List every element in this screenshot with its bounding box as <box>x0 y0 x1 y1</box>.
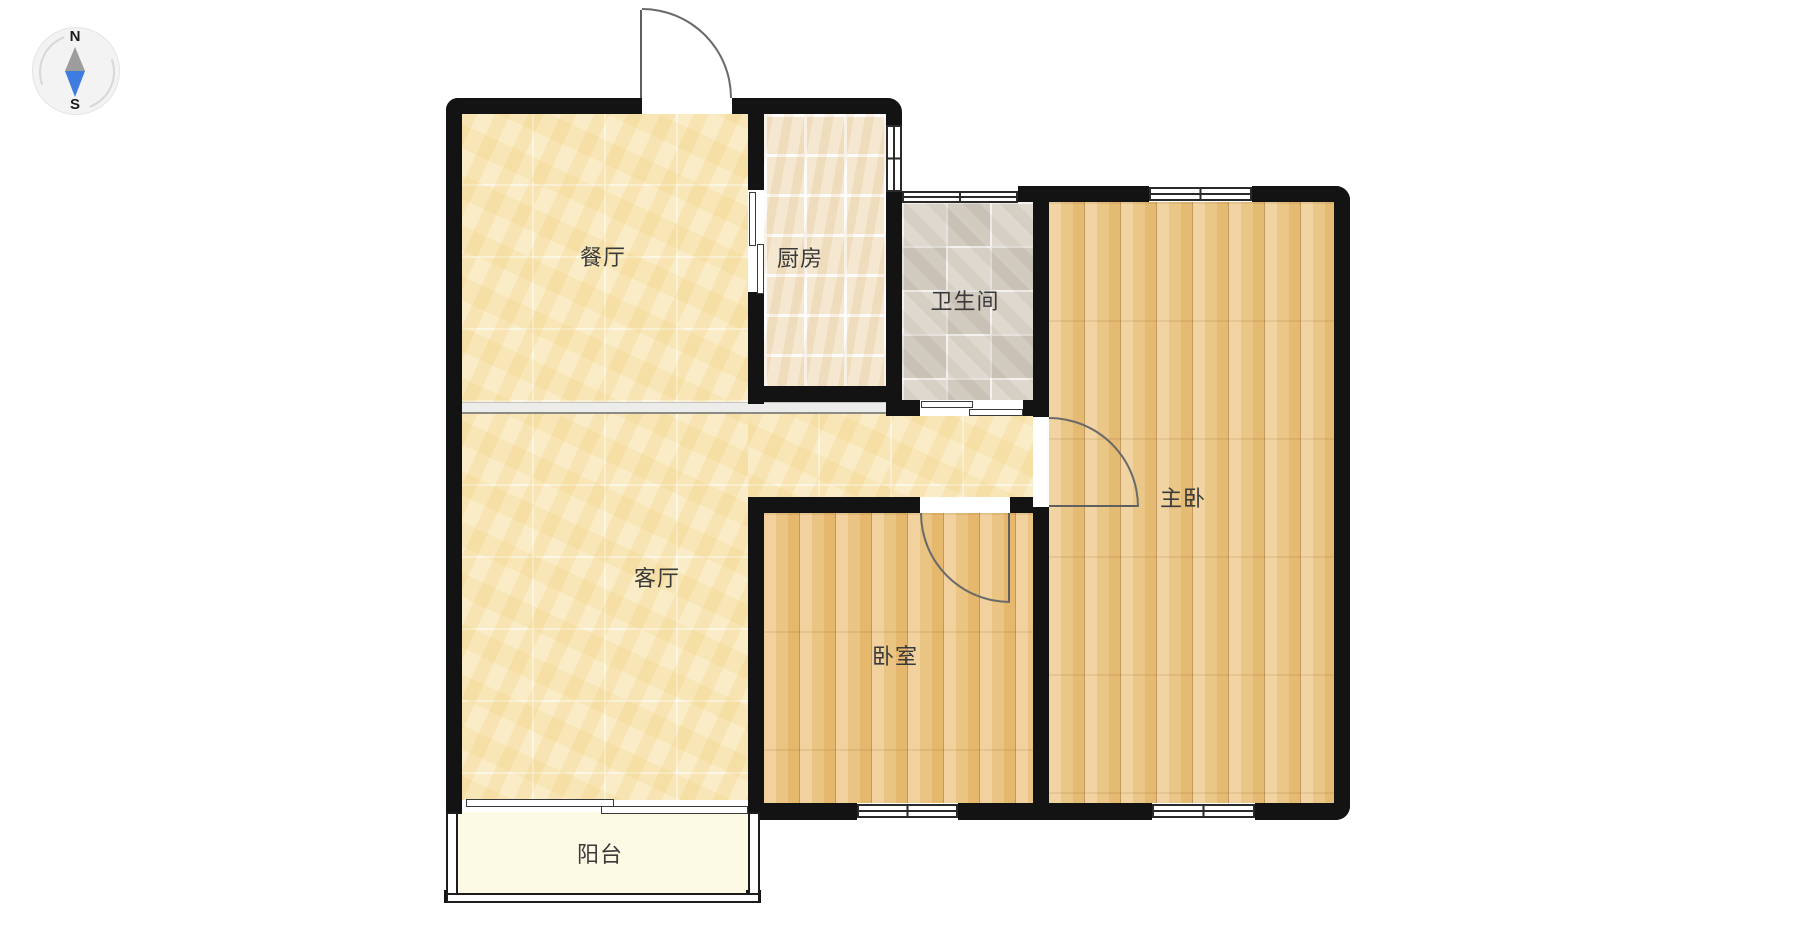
bathroom-sliding-door-panel <box>921 401 973 408</box>
entry-door-opening <box>642 98 732 114</box>
room-label-dining: 餐厅 <box>580 240 626 272</box>
compass-north-label: N <box>70 28 81 45</box>
compass-south-label: S <box>70 96 80 113</box>
room-living-floor <box>462 414 748 800</box>
entry-door-arc <box>642 8 732 98</box>
hallway-floor <box>748 414 1033 497</box>
wall <box>1049 803 1152 820</box>
balcony-sliding-door-panel <box>466 799 614 807</box>
wall <box>1010 497 1033 513</box>
compass-needle-north-icon <box>65 47 85 71</box>
wall <box>886 186 902 402</box>
wall <box>764 386 886 402</box>
bathroom-sliding-door-panel <box>969 409 1023 416</box>
room-label-master-bedroom: 主卧 <box>1160 481 1206 513</box>
compass-needle-south-icon <box>65 71 85 97</box>
room-label-balcony: 阳台 <box>577 837 623 869</box>
wall <box>748 803 857 820</box>
wall <box>446 98 642 114</box>
compass: N S <box>27 22 123 118</box>
room-label-kitchen: 厨房 <box>777 241 823 273</box>
wall <box>886 400 920 416</box>
wall <box>1334 186 1350 820</box>
wall <box>748 114 764 192</box>
room-label-bathroom: 卫生间 <box>930 284 999 316</box>
room-label-bedroom: 卧室 <box>872 639 918 671</box>
bedroom-door-opening <box>920 497 1010 513</box>
kitchen-window <box>886 125 902 192</box>
wall <box>732 98 902 114</box>
kitchen-sliding-door-panel <box>749 192 756 246</box>
balcony-railing-bottom <box>446 893 760 903</box>
balcony-sliding-door-panel <box>601 806 748 814</box>
wall <box>1023 400 1049 416</box>
floor-plan-canvas: 餐厅 厨房 卫生间 主卧 客厅 卧室 阳台 N S <box>0 0 1793 944</box>
bathroom-window <box>902 191 1018 203</box>
balcony-railing-right <box>748 812 760 903</box>
wall <box>958 803 1049 820</box>
master-south-window <box>1152 804 1255 818</box>
wall <box>1033 507 1049 820</box>
wall <box>748 290 764 404</box>
balcony-railing-left <box>446 812 458 903</box>
wall <box>1033 186 1049 417</box>
bedroom-south-window <box>857 804 958 818</box>
wall <box>748 513 764 820</box>
wall <box>748 497 920 513</box>
wall <box>1255 803 1350 820</box>
master-door-opening <box>1033 417 1049 507</box>
room-label-living: 客厅 <box>634 561 680 593</box>
kitchen-sliding-door-panel <box>757 244 764 294</box>
wall <box>446 98 462 814</box>
master-north-window <box>1149 187 1252 201</box>
ceiling-beam-divider <box>452 402 888 414</box>
